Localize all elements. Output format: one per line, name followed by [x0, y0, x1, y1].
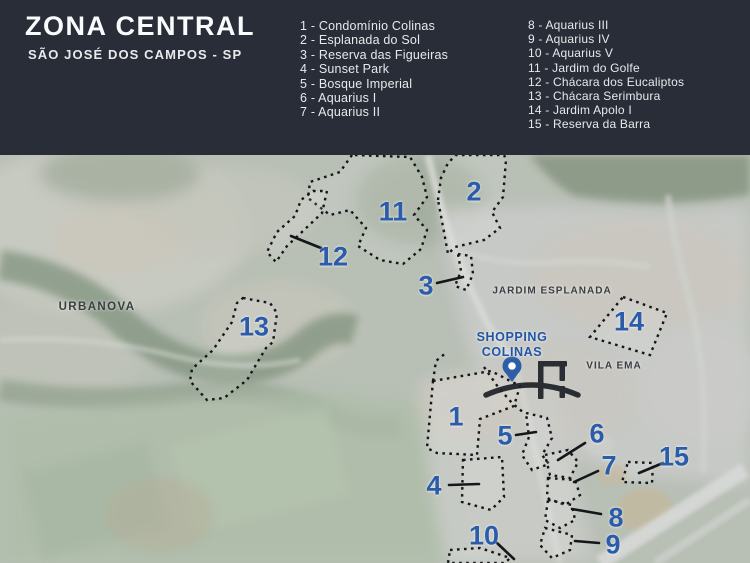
map-marker-12: 12 [318, 244, 348, 271]
legend-item-4: 4 - Sunset Park [300, 62, 448, 76]
map-marker-3: 3 [418, 273, 433, 300]
map-marker-15: 15 [659, 444, 689, 471]
legend-item-14: 14 - Jardim Apolo I [528, 103, 684, 117]
legend-item-9: 9 - Aquarius IV [528, 32, 684, 46]
map-marker-2: 2 [466, 179, 481, 206]
legend-item-6: 6 - Aquarius I [300, 91, 448, 105]
legend-item-13: 13 - Chácara Serimbura [528, 89, 684, 103]
legend-item-11: 11 - Jardim do Golfe [528, 61, 684, 75]
legend-item-7: 7 - Aquarius II [300, 105, 448, 119]
legend-column-1: 1 - Condomínio Colinas 2 - Esplanada do … [300, 19, 448, 120]
area-label-jardim-esplanada: JARDIM ESPLANADA [492, 286, 611, 297]
shopping-colinas-line1: SHOPPING [477, 330, 548, 345]
legend-item-1: 1 - Condomínio Colinas [300, 19, 448, 33]
map-marker-13: 13 [239, 314, 269, 341]
map-marker-14: 14 [614, 309, 644, 336]
satellite-map: URBANOVA JARDIM ESPLANADA VILA EMA SHOPP… [0, 155, 750, 563]
map-marker-9: 9 [605, 532, 620, 559]
map-marker-7: 7 [601, 453, 616, 480]
legend-item-8: 8 - Aquarius III [528, 18, 684, 32]
satellite-map-graphic [0, 155, 750, 563]
page-title: ZONA CENTRAL [25, 12, 255, 42]
map-marker-1: 1 [448, 404, 463, 431]
shopping-colinas-line2: COLINAS [477, 345, 548, 360]
area-label-vila-ema: VILA EMA [586, 361, 641, 372]
title-block: ZONA CENTRAL SÃO JOSÉ DOS CAMPOS - SP [25, 12, 255, 62]
region-outline-15 [622, 462, 653, 483]
page-subtitle: SÃO JOSÉ DOS CAMPOS - SP [25, 47, 255, 62]
legend-item-5: 5 - Bosque Imperial [300, 77, 448, 91]
shopping-colinas-label: SHOPPING COLINAS [477, 330, 548, 360]
map-marker-5: 5 [497, 423, 512, 450]
legend-item-15: 15 - Reserva da Barra [528, 117, 684, 131]
header: ZONA CENTRAL SÃO JOSÉ DOS CAMPOS - SP 1 … [0, 0, 750, 155]
map-marker-8: 8 [608, 505, 623, 532]
legend-item-3: 3 - Reserva das Figueiras [300, 48, 448, 62]
map-marker-11: 11 [379, 199, 408, 226]
map-marker-6: 6 [589, 421, 604, 448]
map-marker-4: 4 [426, 473, 441, 500]
map-marker-10: 10 [469, 523, 499, 550]
legend-item-12: 12 - Chácara dos Eucaliptos [528, 75, 684, 89]
area-label-urbanova: URBANOVA [59, 301, 136, 313]
legend-item-2: 2 - Esplanada do Sol [300, 33, 448, 47]
legend-column-2: 8 - Aquarius III 9 - Aquarius IV 10 - Aq… [528, 18, 684, 132]
infographic-page: ZONA CENTRAL SÃO JOSÉ DOS CAMPOS - SP 1 … [0, 0, 750, 563]
legend-item-10: 10 - Aquarius V [528, 46, 684, 60]
